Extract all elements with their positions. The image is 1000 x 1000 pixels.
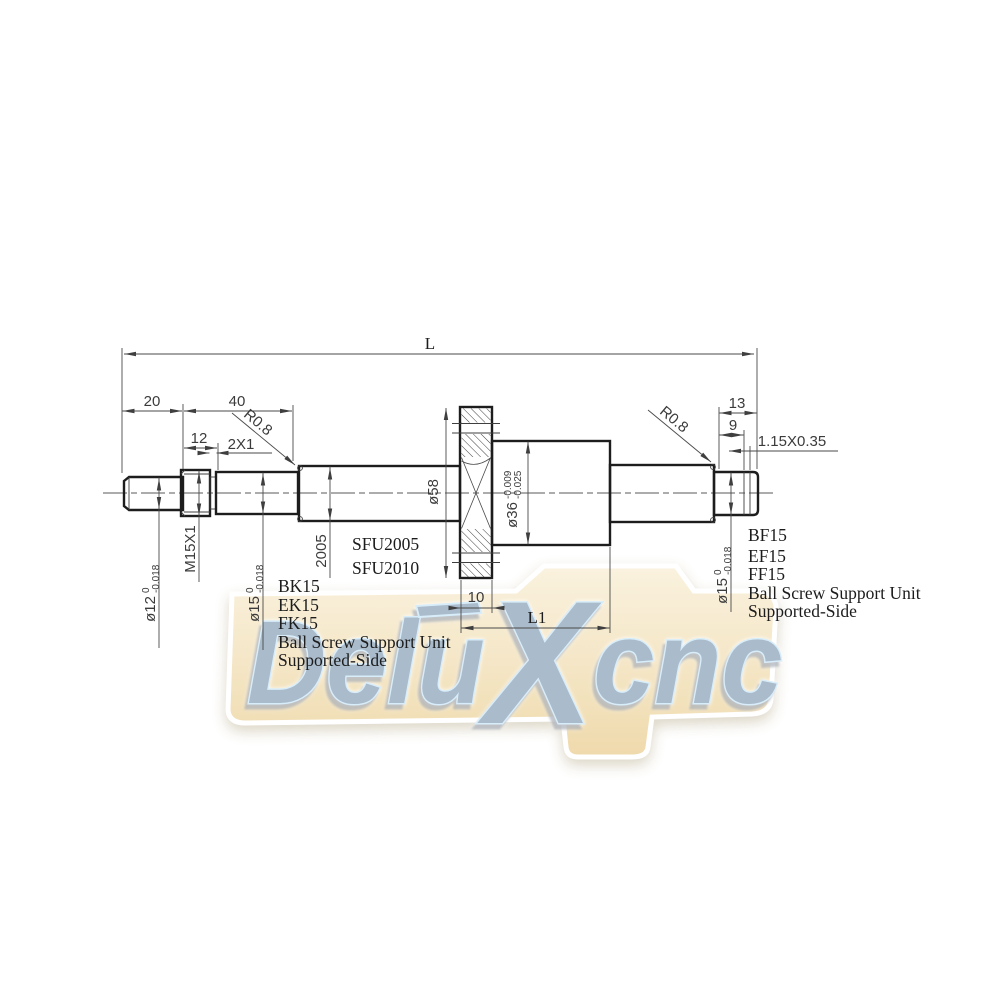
flange-hatch-upper xyxy=(462,434,491,457)
dimension-thread-length-12: 12 xyxy=(184,430,217,448)
left-support-model-bk15: BK15 xyxy=(278,576,320,596)
dimension-undercut-2x1: 2X1 xyxy=(198,436,272,453)
dia36-sub: -0.025 xyxy=(513,470,524,499)
screw-model-sfu2010: SFU2010 xyxy=(352,558,419,578)
dimension-left-section-40: 40 xyxy=(184,393,292,411)
drawing-canvas: DeluXcnc xyxy=(0,0,1000,1000)
dim-text-2x1: 2X1 xyxy=(228,436,255,453)
dimension-left-end-20: 20 xyxy=(123,393,183,411)
dia36-main: ø36 xyxy=(504,502,521,528)
flange-hatch-bottom xyxy=(462,564,491,578)
ballscrew-technical-drawing: DeluXcnc xyxy=(0,0,1000,1000)
dim-text-L1: L1 xyxy=(528,608,547,627)
dimension-fillet-right: R0.8 xyxy=(648,403,711,462)
dimension-overall-length: L xyxy=(124,334,754,354)
left-support-desc1: Ball Screw Support Unit xyxy=(278,632,451,652)
flange-hatch-lower xyxy=(462,529,491,552)
left-support-model-fk15: FK15 xyxy=(278,613,318,633)
left-journal xyxy=(124,477,183,510)
right-support-desc2: Supported-Side xyxy=(748,601,857,621)
label-thread-spec: M15X1 xyxy=(182,471,199,583)
screw-spec-text: 2005 xyxy=(313,534,330,567)
label-screw-spec: 2005 xyxy=(313,467,330,579)
bearing-journal-right xyxy=(714,472,758,515)
dim-text-groove: 1.15X0.35 xyxy=(758,433,826,450)
right-support-desc1: Ball Screw Support Unit xyxy=(748,583,921,603)
dim-text-40: 40 xyxy=(229,393,246,410)
dimension-circlip-groove: 1.15X0.35 xyxy=(729,433,838,451)
right-support-model-ef15: EF15 xyxy=(748,546,786,566)
thread-spec-text: M15X1 xyxy=(182,525,199,573)
label-left-journal-dia: ø12 0 -0.018 xyxy=(141,478,162,649)
dia15r-main: ø15 xyxy=(714,578,731,604)
dia15l-main: ø15 xyxy=(246,596,263,622)
dim-text-10: 10 xyxy=(468,589,485,606)
label-flange-dia: ø58 xyxy=(425,408,446,578)
dia12-main: ø12 xyxy=(142,596,159,622)
screw-model-sfu2005: SFU2005 xyxy=(352,534,419,554)
screw-shaft-right xyxy=(610,465,715,523)
dim-text-12: 12 xyxy=(191,430,208,447)
dimension-right-journal-9: 9 xyxy=(720,417,744,435)
dim-text-L: L xyxy=(425,334,435,353)
flange-hatch-top xyxy=(462,409,491,423)
dia58-text: ø58 xyxy=(425,479,442,505)
right-support-model-ff15: FF15 xyxy=(748,564,785,584)
dim-text-13: 13 xyxy=(729,395,746,412)
dimension-right-end-13: 13 xyxy=(720,395,757,413)
dim-text-9: 9 xyxy=(729,417,737,434)
right-support-model-bf15: BF15 xyxy=(748,525,787,545)
right-support-block: BF15 EF15 FF15 Ball Screw Support Unit S… xyxy=(748,525,921,621)
dim-text-20: 20 xyxy=(144,393,161,410)
left-support-desc2: Supported-Side xyxy=(278,650,387,670)
dia15l-sub: -0.018 xyxy=(255,564,266,593)
screw-model-notes: SFU2005 SFU2010 xyxy=(352,534,419,578)
dia12-sub: -0.018 xyxy=(151,564,162,593)
dia15r-sub: -0.018 xyxy=(723,546,734,575)
left-support-model-ek15: EK15 xyxy=(278,595,319,615)
